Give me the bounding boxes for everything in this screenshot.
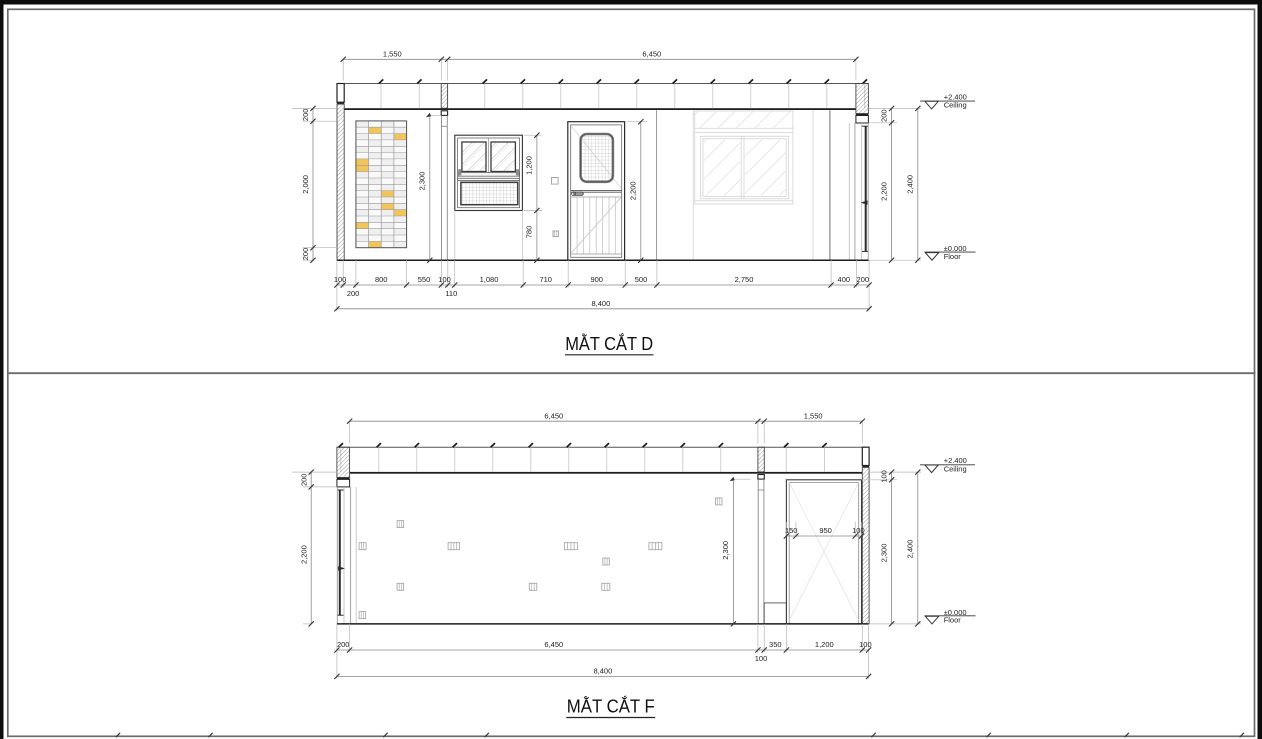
svg-text:100: 100 [334,275,347,284]
svg-text:350: 350 [769,640,782,649]
svg-text:200: 200 [301,109,310,122]
svg-text:6,450: 6,450 [544,640,563,649]
svg-text:2,000: 2,000 [301,175,310,194]
svg-text:2,200: 2,200 [629,181,638,200]
svg-text:2,200: 2,200 [880,182,889,201]
svg-text:2,300: 2,300 [721,541,730,560]
svg-text:200: 200 [337,640,350,649]
svg-text:100: 100 [438,275,451,284]
svg-text:150: 150 [785,526,798,535]
svg-text:200: 200 [880,109,889,122]
svg-text:Floor: Floor [944,616,962,625]
svg-text:200: 200 [299,474,308,487]
svg-text:1,200: 1,200 [525,156,534,175]
svg-text:1,550: 1,550 [804,411,823,420]
svg-text:100: 100 [880,470,889,483]
svg-text:200: 200 [857,275,870,284]
svg-text:6,450: 6,450 [642,50,661,59]
svg-text:100: 100 [859,640,872,649]
svg-text:2,300: 2,300 [418,172,427,191]
svg-text:200: 200 [301,248,310,261]
svg-text:1,550: 1,550 [383,50,402,59]
svg-text:100: 100 [755,654,768,663]
svg-text:1,080: 1,080 [480,275,499,284]
svg-text:800: 800 [375,275,388,284]
svg-text:400: 400 [838,275,851,284]
svg-text:100: 100 [852,526,865,535]
svg-text:2,400: 2,400 [906,175,915,194]
svg-text:2,300: 2,300 [880,544,889,563]
svg-text:2,400: 2,400 [906,540,915,559]
svg-text:710: 710 [539,275,552,284]
svg-text:MẰT CẮT D: MẰT CẮT D [565,333,653,354]
svg-text:2,200: 2,200 [299,545,308,564]
svg-text:900: 900 [590,275,603,284]
svg-text:8,400: 8,400 [592,299,611,308]
svg-text:Ceiling: Ceiling [944,101,967,110]
svg-text:2,750: 2,750 [735,275,754,284]
svg-text:Ceiling: Ceiling [944,464,967,473]
svg-text:110: 110 [445,289,457,298]
svg-text:550: 550 [418,275,431,284]
svg-text:950: 950 [819,526,832,535]
svg-text:Floor: Floor [944,252,962,261]
svg-text:6,450: 6,450 [544,411,563,420]
svg-text:8,400: 8,400 [594,667,613,676]
svg-text:500: 500 [635,275,648,284]
svg-text:780: 780 [525,226,534,239]
svg-text:MẰT CẮT F: MẰT CẮT F [567,696,655,717]
svg-text:1,200: 1,200 [815,640,834,649]
svg-text:200: 200 [347,289,360,298]
